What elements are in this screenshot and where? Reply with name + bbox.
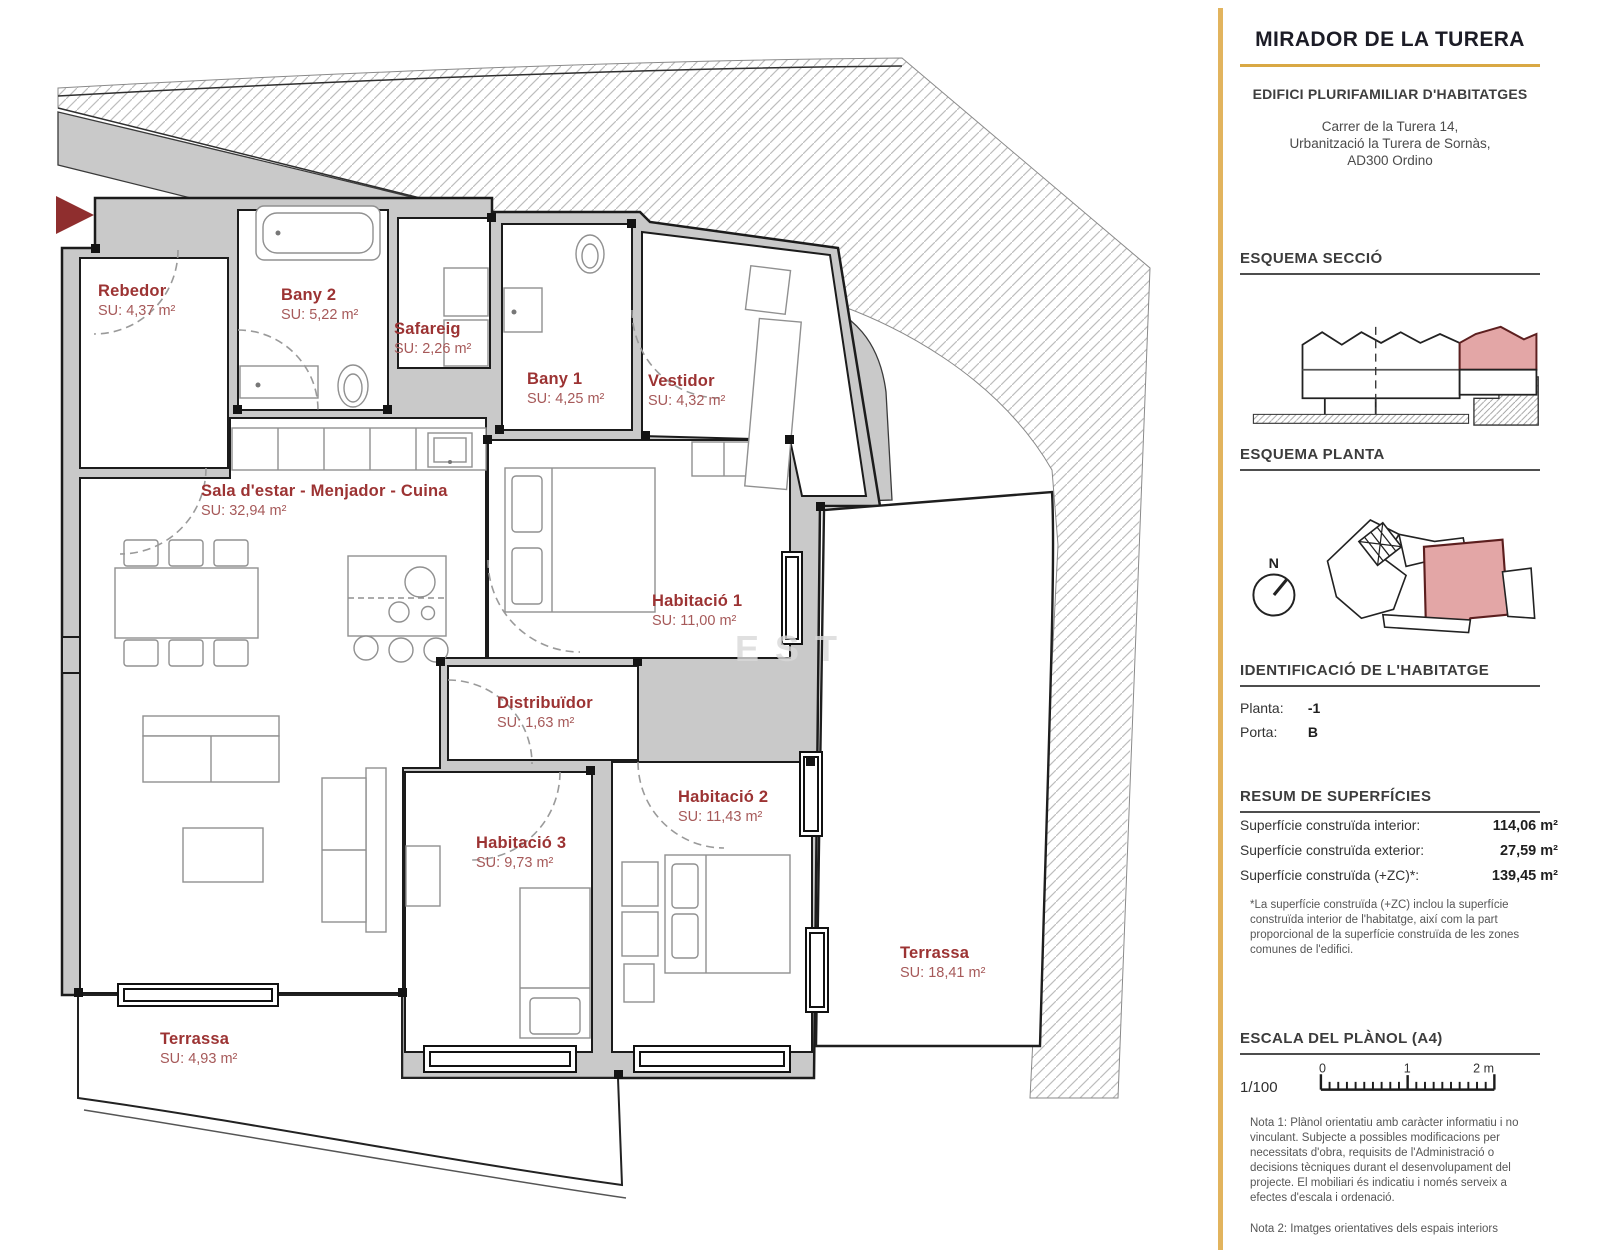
floorplan-page: EST RebedorSU: 4,37 m² Bany 2SU: 5,22 m²…: [0, 0, 1600, 1258]
accent-line: [1218, 8, 1223, 1250]
floor-plan: EST RebedorSU: 4,37 m² Bany 2SU: 5,22 m²…: [0, 0, 1190, 1258]
porta-label: Porta:: [1240, 724, 1304, 740]
info-sidebar: MIRADOR DE LA TURERA EDIFICI PLURIFAMILI…: [1192, 0, 1600, 1258]
nota-2: Nota 2: Imatges orientatives dels espais…: [1240, 1222, 1536, 1237]
room-label-vestidor: VestidorSU: 4,32 m²: [648, 372, 725, 409]
room-label-rebedor: RebedorSU: 4,37 m²: [98, 282, 175, 319]
plan-schema-diagram: N: [1240, 482, 1540, 658]
scale-ratio: 1/100: [1240, 1079, 1278, 1098]
porta-row: Porta: B: [1240, 724, 1540, 740]
room-label-habitacio3: Habitació 3SU: 9,73 m²: [476, 834, 566, 871]
svg-text:2 m: 2 m: [1473, 1062, 1494, 1075]
title-rule: [1240, 64, 1540, 67]
section-schema-diagram: [1240, 284, 1540, 434]
planta-label: Planta:: [1240, 700, 1304, 716]
surface-row: Superfície construïda (+ZC)*: 139,45 m²: [1240, 868, 1558, 884]
room-label-terrassa-right: TerrassaSU: 18,41 m²: [900, 944, 985, 981]
section-heading-resum: RESUM DE SUPERFÍCIES: [1240, 788, 1540, 813]
scale-row: 1/100 0 1 2 m: [1240, 1062, 1540, 1098]
entrance-arrow-icon: [56, 196, 94, 234]
watermark: EST: [735, 628, 853, 670]
room-label-bany1: Bany 1SU: 4,25 m²: [527, 370, 604, 407]
building-subtitle: EDIFICI PLURIFAMILIAR D'HABITATGES: [1240, 86, 1540, 102]
section-heading-seccio: ESQUEMA SECCIÓ: [1240, 250, 1540, 275]
address: Carrer de la Turera 14, Urbanització la …: [1240, 118, 1540, 169]
surface-footnote: *La superfície construïda (+ZC) inclou l…: [1240, 898, 1536, 958]
section-heading-escala: ESCALA DEL PLÀNOL (A4): [1240, 1030, 1540, 1055]
planta-value: -1: [1308, 700, 1320, 716]
floor-plan-drawing: [0, 0, 1190, 1258]
porta-value: B: [1308, 724, 1318, 740]
room-label-sala: Sala d'estar - Menjador - CuinaSU: 32,94…: [201, 482, 448, 519]
svg-text:1: 1: [1403, 1062, 1410, 1075]
room-label-terrassa-bottom: TerrassaSU: 4,93 m²: [160, 1030, 237, 1067]
room-label-distribuidor: DistribuïdorSU: 1,63 m²: [497, 694, 593, 731]
surface-row: Superfície construïda exterior: 27,59 m²: [1240, 843, 1558, 859]
scale-bar: 0 1 2 m: [1292, 1062, 1504, 1098]
address-line: Carrer de la Turera 14,: [1240, 118, 1540, 135]
room-label-habitacio2: Habitació 2SU: 11,43 m²: [678, 788, 768, 825]
planta-row: Planta: -1: [1240, 700, 1540, 716]
address-line: AD300 Ordino: [1240, 152, 1540, 169]
room-label-safareig: SafareigSU: 2,26 m²: [394, 320, 471, 357]
project-title: MIRADOR DE LA TURERA: [1240, 28, 1540, 52]
room-label-bany2: Bany 2SU: 5,22 m²: [281, 286, 358, 323]
section-heading-planta: ESQUEMA PLANTA: [1240, 446, 1540, 471]
surface-row: Superfície construïda interior: 114,06 m…: [1240, 818, 1558, 834]
svg-text:N: N: [1269, 556, 1279, 572]
address-line: Urbanització la Turera de Sornàs,: [1240, 135, 1540, 152]
svg-text:0: 0: [1319, 1062, 1326, 1075]
north-compass-icon: N: [1253, 556, 1294, 615]
section-heading-identificacio: IDENTIFICACIÓ DE L'HABITATGE: [1240, 662, 1540, 687]
nota-1: Nota 1: Plànol orientatiu amb caràcter i…: [1240, 1116, 1536, 1206]
room-label-habitacio1: Habitació 1SU: 11,00 m²: [652, 592, 742, 629]
